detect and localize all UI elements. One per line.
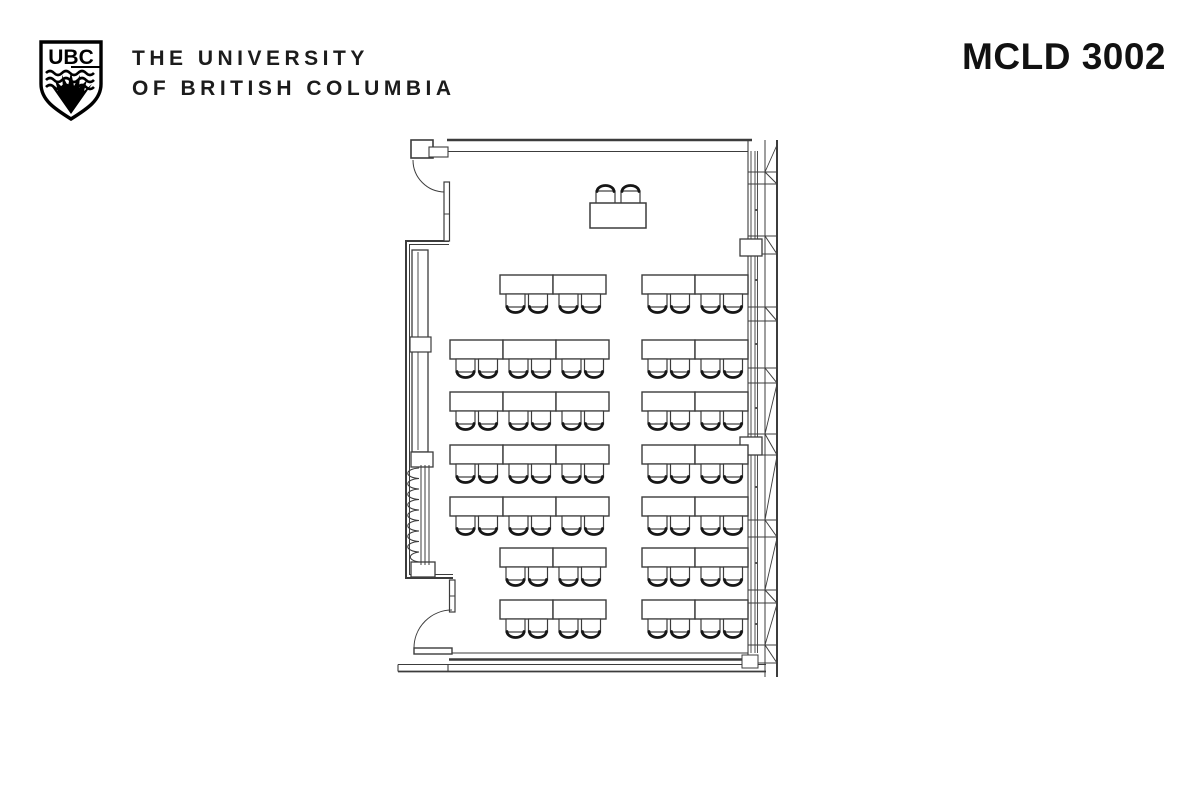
- student-table: [695, 497, 748, 516]
- student-table: [553, 275, 606, 294]
- student-chair: [562, 464, 581, 477]
- student-chair: [671, 464, 690, 477]
- student-table: [695, 445, 748, 464]
- student-table: [695, 275, 748, 294]
- student-chair: [701, 359, 720, 372]
- furniture-layer: [450, 186, 748, 638]
- student-chair: [671, 619, 690, 632]
- window-hinge-dots: [755, 209, 757, 625]
- student-chair: [529, 619, 548, 632]
- student-table: [450, 392, 503, 411]
- student-table: [695, 600, 748, 619]
- student-chair: [562, 359, 581, 372]
- student-chair: [509, 359, 528, 372]
- student-table: [553, 600, 606, 619]
- student-chair: [671, 411, 690, 424]
- student-chair: [701, 411, 720, 424]
- student-table: [642, 497, 695, 516]
- student-table: [450, 445, 503, 464]
- student-chair: [562, 516, 581, 529]
- student-chair: [532, 411, 551, 424]
- student-chair: [506, 294, 525, 307]
- student-chair: [509, 464, 528, 477]
- student-table: [503, 497, 556, 516]
- student-table: [503, 392, 556, 411]
- student-chair: [506, 567, 525, 580]
- student-chair: [585, 359, 604, 372]
- student-table: [450, 497, 503, 516]
- student-chair: [559, 619, 578, 632]
- student-table: [556, 445, 609, 464]
- student-chair: [456, 411, 475, 424]
- instructor-desk: [590, 203, 646, 228]
- student-table: [556, 392, 609, 411]
- student-table: [556, 497, 609, 516]
- student-table: [553, 548, 606, 567]
- student-chair: [529, 294, 548, 307]
- student-table: [695, 340, 748, 359]
- student-table: [450, 340, 503, 359]
- instructor-chair: [621, 191, 640, 204]
- student-table: [642, 392, 695, 411]
- student-table: [642, 600, 695, 619]
- student-chair: [648, 359, 667, 372]
- student-table: [642, 340, 695, 359]
- whiteboard: [410, 250, 435, 577]
- student-chair: [582, 567, 601, 580]
- student-chair: [724, 411, 743, 424]
- student-chair: [456, 464, 475, 477]
- student-chair: [532, 516, 551, 529]
- door-leaf-bottom: [414, 648, 452, 654]
- student-chair: [648, 516, 667, 529]
- student-chair: [724, 619, 743, 632]
- student-chair: [671, 567, 690, 580]
- student-table: [503, 445, 556, 464]
- student-chair: [532, 359, 551, 372]
- student-chair: [701, 294, 720, 307]
- floor-plan: [0, 0, 1200, 800]
- student-chair: [671, 294, 690, 307]
- student-chair: [724, 359, 743, 372]
- student-chair: [529, 567, 548, 580]
- coat-hooks: [408, 465, 429, 565]
- student-chair: [456, 516, 475, 529]
- student-chair: [648, 464, 667, 477]
- student-chair: [509, 516, 528, 529]
- student-chair: [559, 567, 578, 580]
- student-chair: [701, 619, 720, 632]
- student-chair: [648, 567, 667, 580]
- door-swing-arc-top: [413, 160, 445, 192]
- student-chair: [562, 411, 581, 424]
- student-chair: [724, 464, 743, 477]
- student-chair: [582, 294, 601, 307]
- student-chair: [648, 294, 667, 307]
- student-table: [503, 340, 556, 359]
- student-chair: [701, 464, 720, 477]
- student-table: [695, 548, 748, 567]
- student-chair: [559, 294, 578, 307]
- window-casement-diagonals: [765, 145, 777, 645]
- instructor-chair: [596, 191, 615, 204]
- student-chair: [585, 516, 604, 529]
- student-chair: [509, 411, 528, 424]
- student-chair: [479, 464, 498, 477]
- student-chair: [648, 619, 667, 632]
- student-chair: [479, 359, 498, 372]
- student-chair: [724, 516, 743, 529]
- student-chair: [585, 464, 604, 477]
- student-chair: [479, 516, 498, 529]
- student-chair: [456, 359, 475, 372]
- student-table: [642, 445, 695, 464]
- student-chair: [701, 567, 720, 580]
- student-table: [500, 600, 553, 619]
- student-table: [695, 392, 748, 411]
- student-chair: [724, 567, 743, 580]
- student-chair: [479, 411, 498, 424]
- student-table: [500, 548, 553, 567]
- student-table: [642, 275, 695, 294]
- student-chair: [724, 294, 743, 307]
- student-table: [556, 340, 609, 359]
- student-chair: [506, 619, 525, 632]
- door-top-left: [411, 140, 450, 241]
- student-table: [500, 275, 553, 294]
- student-chair: [582, 619, 601, 632]
- student-chair: [648, 411, 667, 424]
- student-chair: [585, 411, 604, 424]
- student-chair: [671, 359, 690, 372]
- door-bottom-left: [414, 580, 455, 654]
- student-chair: [671, 516, 690, 529]
- student-chair: [701, 516, 720, 529]
- student-table: [642, 548, 695, 567]
- student-chair: [532, 464, 551, 477]
- door-swing-arc-bottom: [414, 610, 452, 648]
